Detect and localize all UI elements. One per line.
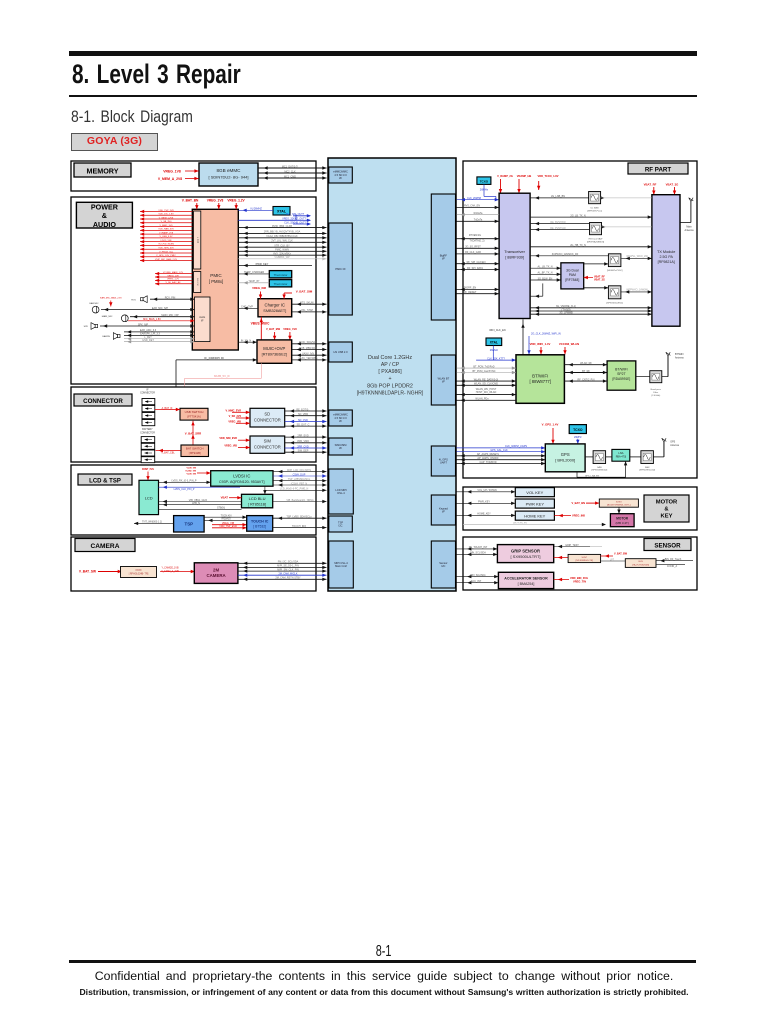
svg-text:2G_LNB_BN: 2G_LNB_BN xyxy=(551,195,565,198)
svg-text:MC1_DAT(0:7): MC1_DAT(0:7) xyxy=(282,165,298,168)
svg-text:[ BRL2000]: [ BRL2000] xyxy=(555,458,575,463)
svg-text:[ SX9500ULTRT]: [ SX9500ULTRT] xyxy=(510,554,540,559)
svg-text:[ BMA254]: [ BMA254] xyxy=(518,582,535,586)
svg-text:I/F: I/F xyxy=(339,446,342,450)
svg-text:[SFWGA208B0G]: [SFWGA208B0G] xyxy=(587,241,605,244)
svg-text:TEMP_BT: TEMP_BT xyxy=(248,280,260,283)
svg-text:VDD_RAB_3V0: VDD_RAB_3V0 xyxy=(158,228,174,231)
svg-text:RF_CNT(2_P.N: RF_CNT(2_P.N xyxy=(578,378,595,381)
svg-text:Dual Core 1.2GHz: Dual Core 1.2GHz xyxy=(368,355,412,361)
svg-text:UL SAW: UL SAW xyxy=(590,207,599,210)
svg-text:VREG_IN8: VREG_IN8 xyxy=(252,286,266,290)
svg-text:2G_CLK_26MHZ_WIFI_IN: 2G_CLK_26MHZ_WIFI_IN xyxy=(531,332,561,335)
svg-text:DSL-4: DSL-4 xyxy=(337,491,345,495)
svg-text:V_MMC_3V0: V_MMC_3V0 xyxy=(159,225,173,227)
svg-text:WLAN_PDn: WLAN_PDn xyxy=(475,398,489,401)
svg-text:V_BAT_BN: V_BAT_BN xyxy=(572,501,586,505)
svg-text:Thermistor: Thermistor xyxy=(274,273,288,277)
svg-text:SIM: SIM xyxy=(264,439,272,444)
svg-text:C93P- AQFDN120- 953AVT]: C93P- AQFDN120- 953AVT] xyxy=(219,480,264,484)
svg-text:VBAT_RF: VBAT_RF xyxy=(644,182,657,186)
svg-text:2G_3G_RFST: 2G_3G_RFST xyxy=(465,246,481,249)
svg-text:UART: UART xyxy=(440,461,447,465)
svg-text:TCXO: TCXO xyxy=(480,179,489,183)
svg-text:[RF7848]: [RF7848] xyxy=(565,278,579,282)
svg-text:[ SDIN7DU2- 8G- 944]: [ SDIN7DU2- 8G- 944] xyxy=(208,175,248,180)
svg-text:VDD_TSP_EVR: VDD_TSP_EVR xyxy=(219,525,237,528)
svg-text:2RR_BBLYB_AVSQVTXVB_UGA: 2RR_BBLYB_AVSQVTXVB_UGA xyxy=(264,231,301,234)
svg-text:GND_DET: GND_DET xyxy=(142,339,154,342)
svg-text:8Gb POP LPDDR2: 8Gb POP LPDDR2 xyxy=(367,384,413,390)
svg-text:VREG_1V8: VREG_1V8 xyxy=(163,169,181,173)
svg-text:VCORE_MAIN_1.2V: VCORE_MAIN_1.2V xyxy=(163,271,184,274)
svg-text:HB Dual SAW: HB Dual SAW xyxy=(589,238,604,241)
svg-text:VDD_TCXO_1.8V: VDD_TCXO_1.8V xyxy=(538,174,559,178)
svg-text:STB(N): STB(N) xyxy=(217,507,225,510)
svg-text:A_BAT_IF: A_BAT_IF xyxy=(162,407,173,410)
svg-text:SD_CVD: SD_CVD xyxy=(298,419,308,422)
svg-text:BAT SWITCH: BAT SWITCH xyxy=(186,447,204,451)
svg-text:I/F: I/F xyxy=(339,419,342,423)
svg-text:CLK_32KHZ_UGPS: CLK_32KHZ_UGPS xyxy=(505,445,527,448)
svg-text:3G Dual: 3G Dual xyxy=(566,269,579,273)
svg-text:(MB 3.4T): (MB 3.4T) xyxy=(616,521,629,525)
svg-text:CSI/A_DUP: CSI/A_DUP xyxy=(293,473,306,476)
svg-text:LVDS_RX_(0-3_P/N_P: LVDS_RX_(0-3_P/N_P xyxy=(171,480,196,483)
svg-text:XXXX: XXXX xyxy=(616,501,622,503)
svg-text:L D O: L D O xyxy=(196,237,199,243)
svg-text:ACCELERATOR SENSOR: ACCELERATOR SENSOR xyxy=(504,576,548,580)
svg-text:CONNECTOR: CONNECTOR xyxy=(140,393,155,395)
svg-text:I/F: I/F xyxy=(339,176,342,180)
svg-text:[RT8973BSE2]: [RT8973BSE2] xyxy=(262,352,287,356)
svg-text:BIN_SCx/SDx: BIN_SCx/SDx xyxy=(470,574,486,577)
svg-text:2.5G PA: 2.5G PA xyxy=(660,255,674,259)
svg-text:Transceiver: Transceiver xyxy=(504,249,525,254)
svg-text:KEY: KEY xyxy=(661,514,673,520)
svg-text:VBAT_3G: VBAT_3G xyxy=(594,279,605,282)
svg-text:MIPI_SM_CLK_P/N: MIPI_SM_CLK_P/N xyxy=(277,568,299,571)
svg-text:WLAN_RF: WLAN_RF xyxy=(580,362,592,365)
svg-text:VDD_SIM_EVR: VDD_SIM_EVR xyxy=(219,437,237,440)
svg-text:WFPWXO_1AW3W: WFPWXO_1AW3W xyxy=(626,289,648,292)
svg-text:BT/WIFI: BT/WIFI xyxy=(532,374,548,379)
svg-text:LDO5_V08: LDO5_V08 xyxy=(161,240,173,242)
svg-text:MUB_MBN/WAL: MUB_MBN/WAL xyxy=(299,347,318,350)
svg-text:EAR_MIC_N/P: EAR_MIC_N/P xyxy=(152,307,169,310)
svg-text:[SFWG05x2E02]: [SFWG05x2E02] xyxy=(606,303,623,305)
svg-text:SAW: SAW xyxy=(597,466,602,469)
svg-text:2M_CAM_MICLK: 2M_CAM_MICLK xyxy=(279,573,298,576)
svg-text:VDD_DIC_1.8V: VDD_DIC_1.8V xyxy=(158,214,174,216)
svg-text:V_BAT_BW: V_BAT_BW xyxy=(266,327,281,331)
svg-text:VBAT: VBAT xyxy=(221,496,229,500)
svg-text:VRR_VMD: VRR_VMD xyxy=(297,440,309,443)
svg-text:[ 88W8777]: [ 88W8777] xyxy=(529,379,550,384)
svg-text:VRAMP_HB: VRAMP_HB xyxy=(517,174,532,178)
svg-text:WFWVL_WKO_2W: WFWVL_WKO_2W xyxy=(626,255,648,258)
svg-text:V_BAT_SW: V_BAT_SW xyxy=(79,569,96,573)
svg-text:MIPI_SE_D0-1_P/N: MIPI_SE_D0-1_P/N xyxy=(277,565,299,568)
svg-text:SPK_N/P: SPK_N/P xyxy=(138,323,149,326)
svg-text:[ BT941B]: [ BT941B] xyxy=(189,451,201,455)
svg-text:&: & xyxy=(102,211,107,220)
svg-text:V_GPS_1.8V_PMIC: V_GPS_1.8V_PMIC xyxy=(156,255,176,257)
svg-text:CLK_32K_OUT?: CLK_32K_OUT? xyxy=(286,213,305,216)
svg-text:RE_EQT(0..: RE_EQT(0.. xyxy=(296,408,310,411)
svg-text:[ RFHGL024B- TR]: [ RFHGL024B- TR] xyxy=(129,573,149,575)
svg-text:PMIC_WWN: PMIC_WWN xyxy=(275,249,289,252)
svg-text:V_5E_EAC_BF: V_5E_EAC_BF xyxy=(165,281,181,284)
svg-text:BT_RF: BT_RF xyxy=(582,370,590,373)
svg-text:[RF9821A]: [RF9821A] xyxy=(658,260,675,264)
svg-text:RF_SPI_DATA: RF_SPI_DATA xyxy=(467,267,483,270)
svg-text:TCXO: TCXO xyxy=(573,428,583,432)
svg-text:V_RAMP_2V8: V_RAMP_2V8 xyxy=(159,231,174,234)
svg-text:IRQ(415: IRQ(415 xyxy=(221,518,231,521)
svg-text:26MHz: 26MHz xyxy=(574,436,582,439)
svg-text:VDD_WIFI_1.4V: VDD_WIFI_1.4V xyxy=(530,342,551,346)
svg-text:AVX_32KxVBKz: AVX_32KxVBKz xyxy=(273,253,291,256)
svg-text:+: + xyxy=(388,376,391,382)
svg-text:DISP_IVS: DISP_IVS xyxy=(142,467,154,471)
svg-text:Antenna: Antenna xyxy=(685,229,695,232)
svg-text:VREG_TIN: VREG_TIN xyxy=(573,579,586,583)
svg-text:Audio: Audio xyxy=(199,316,206,319)
svg-text:WLAN_RE_DATA(0-3): WLAN_RE_DATA(0-3) xyxy=(474,378,499,381)
svg-text:8GB eMMC: 8GB eMMC xyxy=(217,168,242,173)
svg-text:BT_PCM_Cax/SYNC: BT_PCM_Cax/SYNC xyxy=(472,370,495,373)
svg-text:SD: SD xyxy=(264,412,270,417)
svg-text:2VT_LVL_WN_CLK: 2VT_LVL_WN_CLK xyxy=(271,240,293,243)
svg-text:&: & xyxy=(664,507,668,513)
svg-text:POWER: POWER xyxy=(91,203,119,212)
svg-text:VL/26MHZ: VL/26MHZ xyxy=(250,208,262,211)
svg-text:VSIP_MIC_BIAS_2.6V: VSIP_MIC_BIAS_2.6V xyxy=(155,258,178,261)
svg-text:2M_CAM_RSTN STBY: 2M_CAM_RSTN STBY xyxy=(275,577,301,580)
svg-text:VIB_Backboard(1_NRNA: VIB_Backboard(1_NRNA xyxy=(286,499,314,502)
svg-text:VLIN2_VM: VLIN2_VM xyxy=(185,471,196,473)
svg-text:LVDS_CLK_P/N_P: LVDS_CLK_P/N_P xyxy=(174,488,195,491)
svg-text:SENSOR: SENSOR xyxy=(654,542,681,549)
svg-text:(MOTOR)_EN: (MOTOR)_EN xyxy=(513,522,527,524)
svg-text:VGA2_FBLYBBKB7BVCCLK: VGA2_FBLYBBKB7BVCCLK xyxy=(266,235,298,238)
svg-text:EAR MIC: EAR MIC xyxy=(89,302,99,305)
svg-text:RBA-470]: RBA-470] xyxy=(616,456,627,459)
svg-text:LP?: LP? xyxy=(610,558,615,561)
svg-text:BT/WIFI: BT/WIFI xyxy=(615,368,627,372)
svg-text:COND_A: COND_A xyxy=(667,565,678,568)
svg-text:MOTOR: MOTOR xyxy=(616,516,629,520)
svg-text:Antenna: Antenna xyxy=(675,356,684,359)
svg-text:EAR_MIC_BIAS_2.6V: EAR_MIC_BIAS_2.6V xyxy=(100,296,122,299)
svg-text:2G_LB_TX_N: 2G_LB_TX_N xyxy=(570,214,585,217)
svg-text:RVS_CAK_EN: RVS_CAK_EN xyxy=(464,205,480,208)
svg-text:PWR_KEY: PWR_KEY xyxy=(256,262,269,266)
svg-text:VLIN_VM: VLIN_VM xyxy=(187,474,197,476)
svg-text:USL_STAP: USL_STAP xyxy=(301,309,314,312)
svg-text:VBAT_3G: VBAT_3G xyxy=(666,182,679,186)
svg-text:HS USB 2.0: HS USB 2.0 xyxy=(334,350,349,354)
svg-text:CONNECTOR: CONNECTOR xyxy=(254,418,281,423)
svg-text:LCD_M(V)I-6-PC_PWE_N: LCD_M(V)I-6-PC_PWE_N xyxy=(280,488,309,491)
svg-text:MC1_CMD: MC1_CMD xyxy=(284,175,296,178)
svg-text:Charger IC: Charger IC xyxy=(265,303,285,308)
svg-text:V_PROX_Vxx: V_PROX_Vxx xyxy=(159,251,174,253)
svg-text:VLIN_VM: VLIN_VM xyxy=(187,468,197,470)
svg-text:VGBBBK_WP: VGBBBK_WP xyxy=(274,256,290,259)
svg-text:I/F: I/F xyxy=(442,257,445,261)
svg-text:VCC/VD_WL8N: VCC/VD_WL8N xyxy=(158,244,174,246)
svg-text:[H9TKNNN8LDAPLR- NGHR]: [H9TKNNN8LDAPLR- NGHR] xyxy=(357,391,424,397)
svg-text:V_BAT_BW: V_BAT_BW xyxy=(614,553,628,556)
svg-text:RE_PVNTGW: RE_PVNTGW xyxy=(550,227,566,230)
svg-text:RCV: RCV xyxy=(131,300,136,302)
svg-text:VREG_1V8: VREG_1V8 xyxy=(167,275,179,277)
svg-text:[RDA5991E]: [RDA5991E] xyxy=(613,377,631,381)
svg-text:VDD_TSP_2V8: VDD_TSP_2V8 xyxy=(158,210,174,212)
svg-text:AL_BF_TX_N: AL_BF_TX_N xyxy=(537,272,552,275)
svg-text:SD_VBM: SD_VBM xyxy=(298,413,308,416)
svg-text:I/F: I/F xyxy=(442,380,445,384)
svg-text:WLAN_SD_CLK/CMD: WLAN_SD_CLK/CMD xyxy=(474,383,498,386)
svg-text:I/F: I/F xyxy=(442,510,445,514)
svg-text:VREG_VIB: VREG_VIB xyxy=(224,445,237,448)
svg-text:MAIN_MIC_N/P: MAIN_MIC_N/P xyxy=(161,314,179,317)
svg-text:[SFH009-Pxxx]: [SFH009-Pxxx] xyxy=(587,211,602,213)
svg-text:V_MEM_A_2V8: V_MEM_A_2V8 xyxy=(158,177,182,181)
svg-text:TX Module: TX Module xyxy=(657,250,675,254)
svg-text:V_GPS_1.4V: V_GPS_1.4V xyxy=(542,423,559,427)
svg-text:BLN: BLN xyxy=(638,561,643,563)
svg-text:CAMERA: CAMERA xyxy=(206,573,226,578)
svg-text:[SFH009E2x002]: [SFH009E2x002] xyxy=(639,470,655,472)
svg-text:(CSI/A_PBT_N: (CSI/A_PBT_N xyxy=(291,482,308,485)
svg-text:VREG_1V8: VREG_1V8 xyxy=(283,327,297,331)
svg-text:SAW: SAW xyxy=(645,466,650,469)
svg-text:XXXX: XXXX xyxy=(135,570,142,572)
svg-text:AP_AGPS_ONOFF: AP_AGPS_ONOFF xyxy=(477,457,499,460)
svg-text:V_RAMP_2G: V_RAMP_2G xyxy=(497,174,513,178)
svg-text:CLK_32KHB_OUT?: CLK_32KHB_OUT? xyxy=(284,221,306,224)
svg-text:BIN_RF_Touch: BIN_RF_Touch xyxy=(665,558,682,561)
svg-text:CONNECTOR: CONNECTOR xyxy=(140,432,155,434)
svg-text:GPS: GPS xyxy=(561,452,570,457)
svg-text:(2.4GHz): (2.4GHz) xyxy=(651,395,660,397)
svg-text:CAMERA: CAMERA xyxy=(91,543,120,550)
svg-text:Band pass: Band pass xyxy=(651,389,662,391)
svg-text:WIFI_CLK_EN: WIFI_CLK_EN xyxy=(489,329,506,332)
svg-text:XTR_CLK_BY: XTR_CLK_BY xyxy=(274,245,290,248)
svg-text:ACC_INT: ACC_INT xyxy=(471,580,482,583)
svg-text:GPS_LNA_EN: GPS_LNA_EN xyxy=(585,474,600,477)
svg-text:BTS_SKUW: BTS_SKUW xyxy=(300,302,314,305)
svg-text:BT_PCM_TxD/RxD: BT_PCM_TxD/RxD xyxy=(473,365,494,368)
svg-text:B U C K: B U C K xyxy=(196,278,198,286)
svg-text:BT/WIFI: BT/WIFI xyxy=(675,354,684,356)
svg-text:RF_SPI_CLK/EN: RF_SPI_CLK/EN xyxy=(467,261,486,264)
svg-text:TOUCH IC: TOUCH IC xyxy=(251,519,269,523)
svg-text:HOME KEY: HOME KEY xyxy=(524,514,545,519)
svg-text:SD_DVT_C: SD_DVT_C xyxy=(297,423,310,426)
svg-text:CLK_26MHZ: CLK_26MHZ xyxy=(467,197,482,200)
svg-text:TxDaTa: TxDaTa xyxy=(474,219,483,222)
svg-text:SPK: SPK xyxy=(84,326,89,328)
svg-text:RF_TOUCH_INT: RF_TOUCH_INT xyxy=(469,546,488,549)
svg-text:IN_XN_N: IN_XN_N xyxy=(241,340,252,343)
svg-text:[SF0807xZ1G2]: [SF0807xZ1G2] xyxy=(607,270,623,272)
svg-text:CAP_TXD/RXD: CAP_TXD/RXD xyxy=(479,461,496,464)
svg-text:3G_LPMMB: 3G_LPMMB xyxy=(559,312,573,315)
svg-text:CONNECTOR: CONNECTOR xyxy=(83,398,123,405)
svg-text:[FT7541A]: [FT7541A] xyxy=(187,414,200,418)
svg-text:V_USB_3.3V: V_USB_3.3V xyxy=(160,236,173,238)
svg-text:EARPH: EARPH xyxy=(102,335,110,338)
svg-text:RCV_P/N: RCV_P/N xyxy=(165,297,176,300)
svg-text:Y_CAM/2E_1VB: Y_CAM/2E_1VB xyxy=(162,567,179,570)
svg-text:2RR_EVD: 2RR_EVD xyxy=(297,434,308,437)
svg-text:PMIC_BBZ_CLKB: PMIC_BBZ_CLKB xyxy=(272,225,292,228)
svg-text:[ PM8x]: [ PM8x] xyxy=(209,279,223,284)
svg-text:HOST_WU_WLAN: HOST_WU_WLAN xyxy=(476,391,497,394)
svg-text:CHG_OVP: CHG_OVP xyxy=(241,306,253,309)
svg-text:LCD: LCD xyxy=(145,496,153,501)
svg-text:UAXV_IVN: UAXV_IVN xyxy=(302,353,314,356)
svg-text:VOL KEY: VOL KEY xyxy=(526,490,543,495)
svg-text:VREG_IN8: VREG_IN8 xyxy=(572,514,585,518)
svg-text:RE_BVSHXW: RE_BVSHXW xyxy=(550,221,566,224)
svg-text:BATTERY: BATTERY xyxy=(142,428,153,431)
svg-text:[ RT8511B]: [ RT8511B] xyxy=(248,502,266,506)
svg-text:LVDSI IC: LVDSI IC xyxy=(233,473,250,478)
svg-text:I2C: I2C xyxy=(441,564,445,568)
svg-text:[BU23T5H5NKB_SVTL]: [BU23T5H5NKB_SVTL] xyxy=(607,505,631,507)
svg-text:V_SB_3V0: V_SB_3V0 xyxy=(161,221,172,223)
svg-text:TNT_WN(000.1.Q: TNT_WN(000.1.Q xyxy=(142,521,162,524)
svg-text:SUS?: SUS? xyxy=(581,557,587,559)
svg-text:TSP_LVBSSDA/SCL: TSP_LVBSSDA/SCL xyxy=(288,478,311,481)
svg-text:AP_AGPS_RESETn: AP_AGPS_RESETn xyxy=(477,453,500,456)
svg-text:VCCIN3_WLAN: VCCIN3_WLAN xyxy=(559,342,579,346)
svg-text:VDD_SEN_3V0: VDD_SEN_3V0 xyxy=(158,248,174,250)
svg-text:AP / CP: AP / CP xyxy=(381,362,400,368)
svg-text:GRIP SENSOR: GRIP SENSOR xyxy=(511,548,540,553)
svg-text:LCD BLU: LCD BLU xyxy=(249,496,266,501)
svg-text:PWR_KEY: PWR_KEY xyxy=(478,501,490,504)
svg-text:Filter: Filter xyxy=(653,391,658,394)
svg-text:2M: 2M xyxy=(213,568,219,573)
svg-text:XTAL: XTAL xyxy=(490,341,498,345)
svg-text:AL_LB_TX_N: AL_LB_TX_N xyxy=(538,266,553,269)
svg-text:2RR_CVD: 2RR_CVD xyxy=(297,445,309,448)
svg-text:AUDIO: AUDIO xyxy=(93,220,117,229)
svg-text:[ 88RF939]: [ 88RF939] xyxy=(505,255,524,259)
svg-text:SMB328AET]: SMB328AET] xyxy=(263,309,286,313)
svg-text:Main Cntrl: Main Cntrl xyxy=(335,564,347,568)
svg-text:VDD_BIN_3VG: VDD_BIN_3VG xyxy=(570,576,588,580)
svg-text:SIM_DEP: SIM_DEP xyxy=(298,450,309,453)
svg-text:MEMORY: MEMORY xyxy=(86,166,118,175)
svg-text:MOTOR: MOTOR xyxy=(656,500,678,506)
svg-text:VREG_32KHZ_OUT?: VREG_32KHZ_OUT? xyxy=(282,218,306,221)
svg-text:SP2T: SP2T xyxy=(617,372,625,376)
svg-text:IF_DIM/DPI ID: IF_DIM/DPI ID xyxy=(204,356,224,360)
svg-text:VREG_1.2V: VREG_1.2V xyxy=(227,199,245,203)
svg-text:DIGRF_EN: DIGRF_EN xyxy=(464,287,477,290)
svg-text:2G_HB_TX_N: 2G_HB_TX_N xyxy=(570,244,586,247)
svg-text:LCD & TSP: LCD & TSP xyxy=(89,478,121,484)
svg-text:TXDATA(0..2): TXDATA(0..2) xyxy=(470,240,485,243)
svg-text:3G_B1W_EN: 3G_B1W_EN xyxy=(538,277,553,280)
svg-text:RF PART: RF PART xyxy=(645,166,672,173)
svg-text:RxDaTa: RxDaTa xyxy=(474,212,483,215)
svg-text:3UPWXO_GINSKIK_RF: 3UPWXO_GINSKIK_RF xyxy=(552,253,579,256)
svg-text:26MHz: 26MHz xyxy=(490,348,499,352)
svg-text:RF_RESET: RF_RESET xyxy=(464,291,477,294)
svg-text:TSP: TSP xyxy=(185,522,194,527)
svg-text:MIC_BIAS_1.8V: MIC_BIAS_1.8V xyxy=(143,318,161,321)
svg-text:[NP-B3N1HD-TR]: [NP-B3N1HD-TR] xyxy=(576,560,594,562)
svg-text:PWR KEY: PWR KEY xyxy=(526,501,545,506)
svg-text:V_BAT_SIM: V_BAT_SIM xyxy=(296,289,313,293)
svg-text:MUIC+OVP: MUIC+OVP xyxy=(263,346,285,351)
svg-text:I2C: I2C xyxy=(339,524,343,528)
svg-text:CLK_32K_KTT?: CLK_32K_KTT? xyxy=(487,357,505,360)
svg-text:V_BAT_CBL: V_BAT_CBL xyxy=(161,451,175,454)
svg-text:[ PXA986]: [ PXA986] xyxy=(378,369,402,375)
svg-text:[ BT532]: [ BT532] xyxy=(253,524,266,528)
svg-text:MAIN_MIC: MAIN_MIC xyxy=(102,315,113,318)
svg-text:FM_I2C_SCL/SDA: FM_I2C_SCL/SDA xyxy=(278,561,299,564)
svg-text:MUIC_YEK/WBS: MUIC_YEK/WBS xyxy=(299,357,318,360)
svg-text:GPS_CAL_CLK: GPS_CAL_CLK xyxy=(490,449,508,452)
svg-text:V_BAT_BN: V_BAT_BN xyxy=(182,199,199,203)
svg-text:TEMP_CHARGER: TEMP_CHARGER xyxy=(244,271,265,274)
svg-text:VREG_1.2V: VREG_1.2V xyxy=(167,279,179,281)
svg-text:V_MEM_C2V8: V_MEM_C2V8 xyxy=(159,217,174,219)
svg-text:MIPI_LCD_D(0-3)/P.N: MIPI_LCD_D(0-3)/P.N xyxy=(287,469,311,472)
svg-text:MUIB_5V_IF: MUIB_5V_IF xyxy=(214,374,230,378)
svg-text:[SFWG08S6002]: [SFWG08S6002] xyxy=(592,470,608,472)
svg-text:MUIC_SDA/SCL: MUIC_SDA/SCL xyxy=(299,341,318,344)
svg-text:CONNECTOR: CONNECTOR xyxy=(254,445,281,450)
svg-text:[TA-VCH1B2008]: [TA-VCH1B2008] xyxy=(632,563,649,566)
svg-text:PMIC: PMIC xyxy=(210,273,222,278)
svg-text:PAM: PAM xyxy=(569,273,576,277)
svg-text:LPB_N: LPB_N xyxy=(192,502,200,505)
svg-text:MC2_CLK: MC2_CLK xyxy=(284,170,296,173)
svg-text:PMIC I/F: PMIC I/F xyxy=(335,267,346,271)
svg-text:HOME_KEY: HOME_KEY xyxy=(477,513,491,516)
svg-text:RTXEN/2G: RTXEN/2G xyxy=(469,234,481,237)
svg-text:GPS: GPS xyxy=(670,442,675,444)
svg-text:VREG_1V8: VREG_1V8 xyxy=(207,199,224,203)
svg-text:Antenna: Antenna xyxy=(670,444,679,447)
svg-text:RF_CLK_CAR: RF_CLK_CAR xyxy=(465,251,481,254)
svg-text:TOUCH_IRQ: TOUCH_IRQ xyxy=(292,525,306,528)
svg-text:BIN_SCL/SDA: BIN_SCL/SDA xyxy=(470,552,486,555)
svg-text:Thermistor: Thermistor xyxy=(274,282,288,286)
svg-text:TSP_LVBS_SDA/SCLx: TSP_LVBS_SDA/SCLx xyxy=(286,516,312,519)
svg-text:VOL_UP / DOWN: VOL_UP / DOWN xyxy=(477,489,497,492)
svg-text:GRIP_TEST: GRIP_TEST xyxy=(565,544,579,547)
